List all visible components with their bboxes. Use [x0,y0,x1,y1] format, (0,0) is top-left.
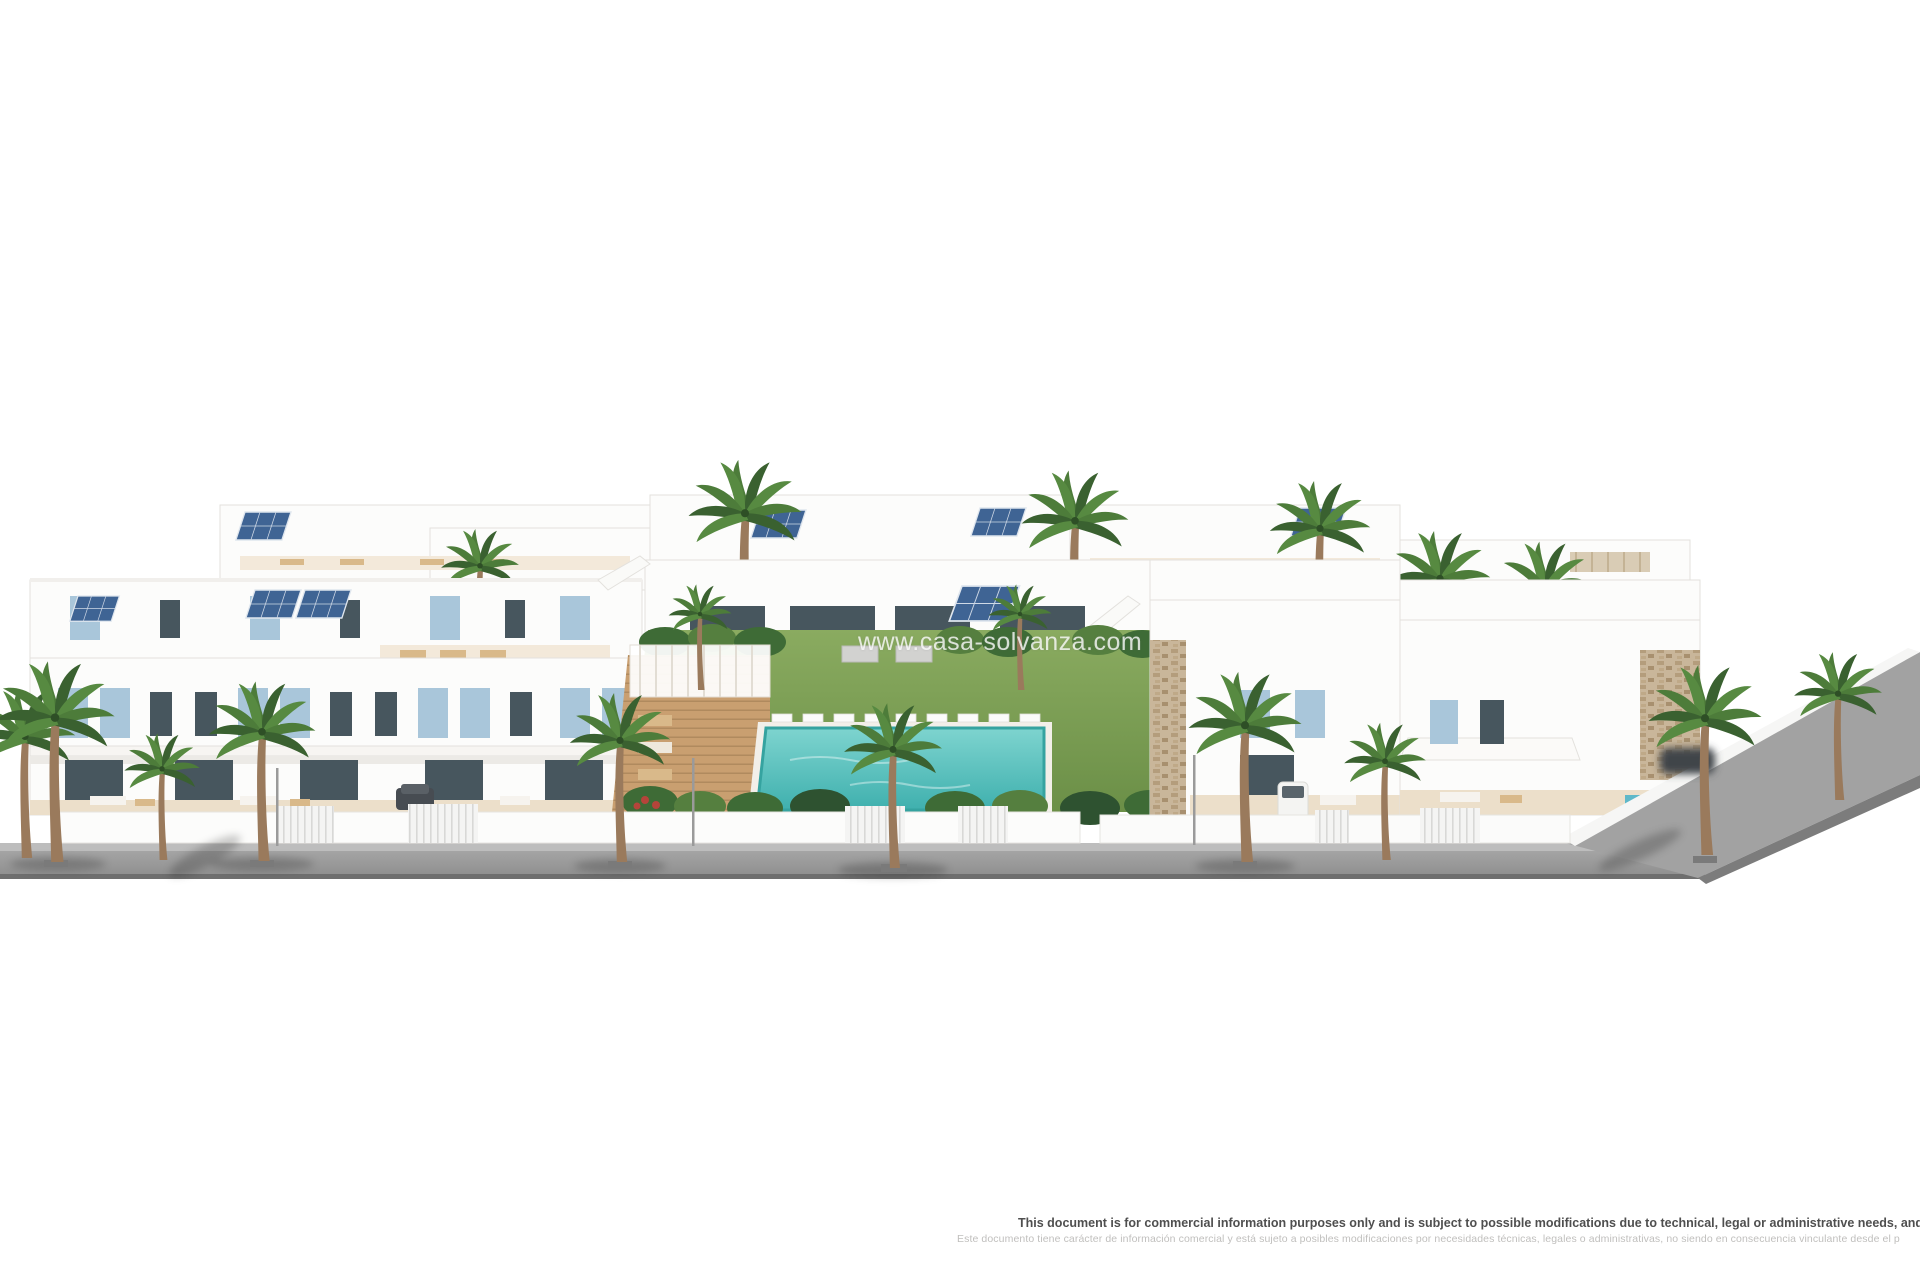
page: www.casa-solvanza.com This document is f… [0,0,1920,1280]
sunbed-pair [842,646,878,662]
front-left-block [30,658,642,815]
disclaimer-spanish: Este documento tiene carácter de informa… [957,1233,1900,1245]
sunbed-pair [896,646,932,662]
stone-wall [1150,640,1186,815]
fence [278,806,334,843]
architectural-render [0,0,1920,1280]
fence [1315,810,1349,843]
fence [408,804,478,843]
fence [1420,808,1480,843]
fence [958,806,1008,843]
roof-pergola [1570,552,1650,572]
disclaimer-english: This document is for commercial informat… [1018,1216,1920,1230]
render-svg [0,0,1920,1280]
